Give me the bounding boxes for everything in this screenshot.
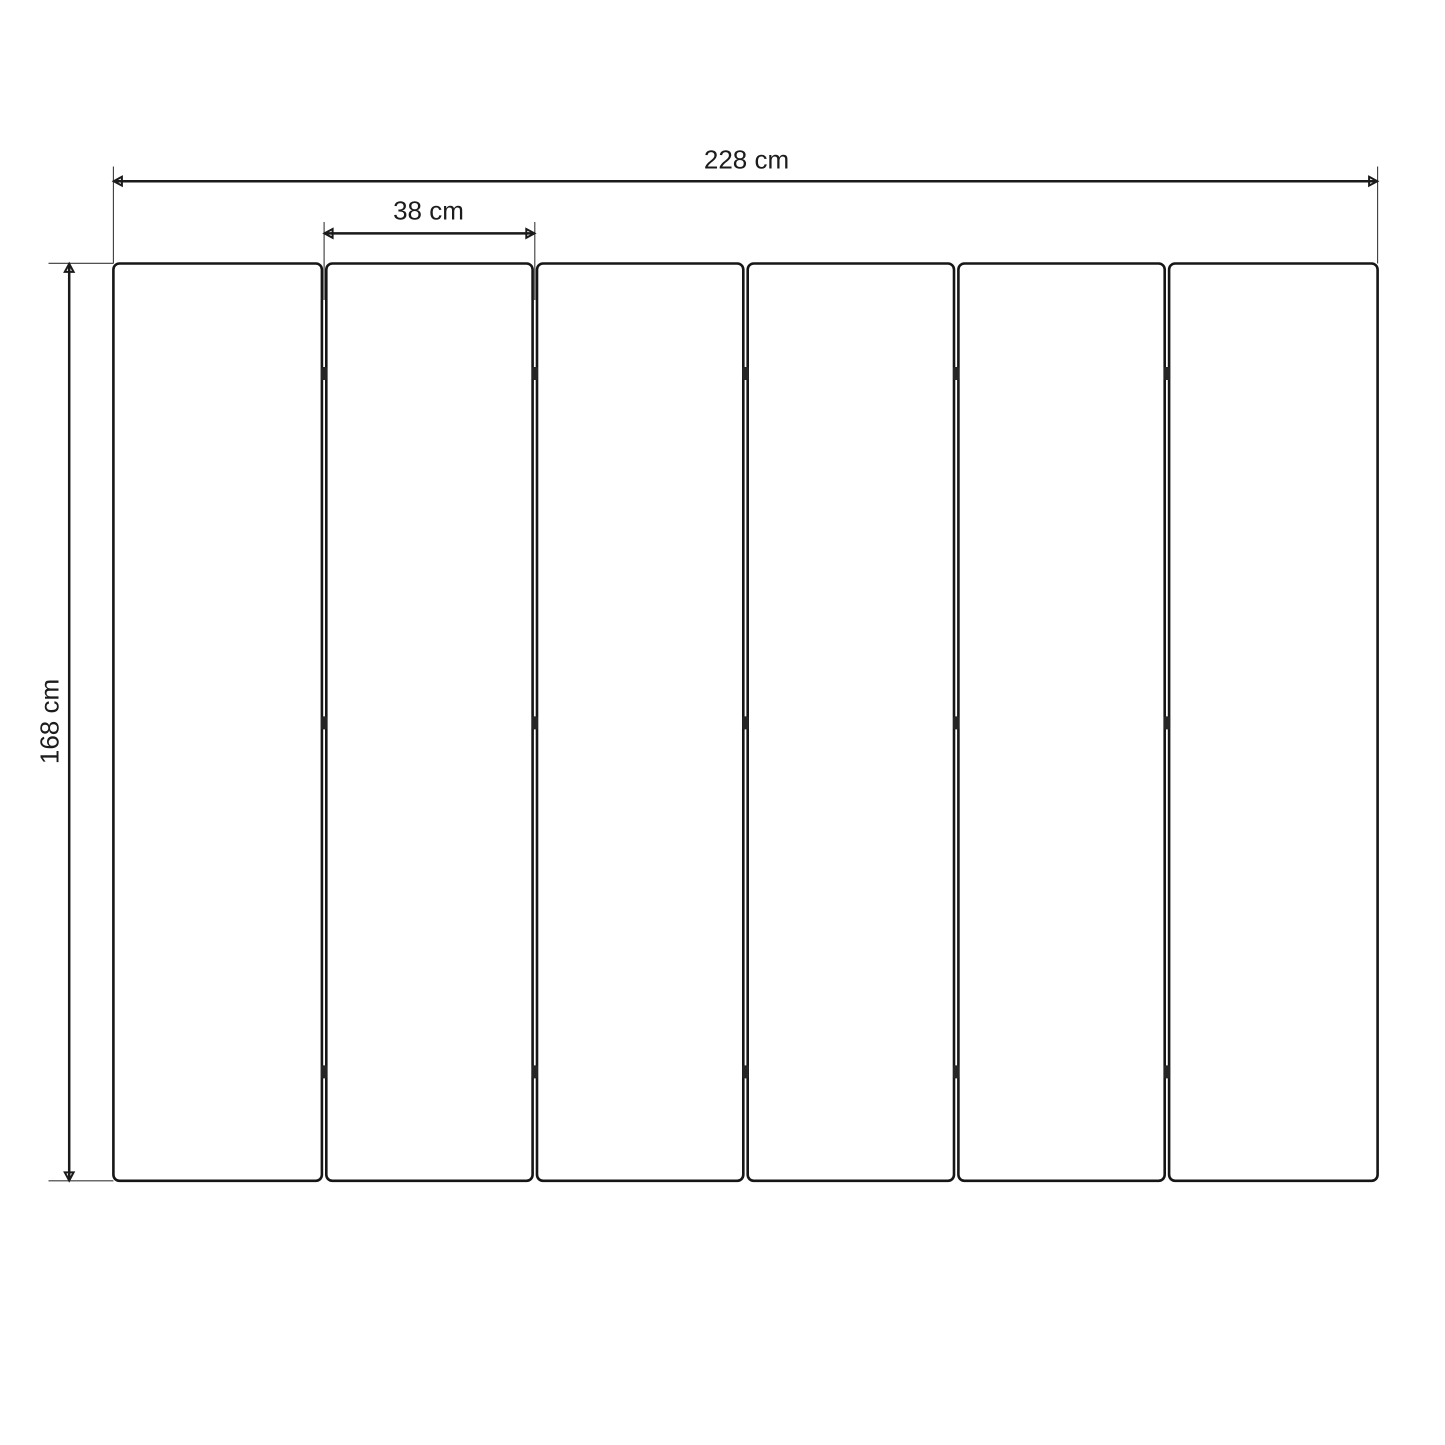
svg-text:228 cm: 228 cm <box>704 144 789 174</box>
svg-text:168 cm: 168 cm <box>34 679 64 764</box>
svg-text:38 cm: 38 cm <box>393 196 464 226</box>
